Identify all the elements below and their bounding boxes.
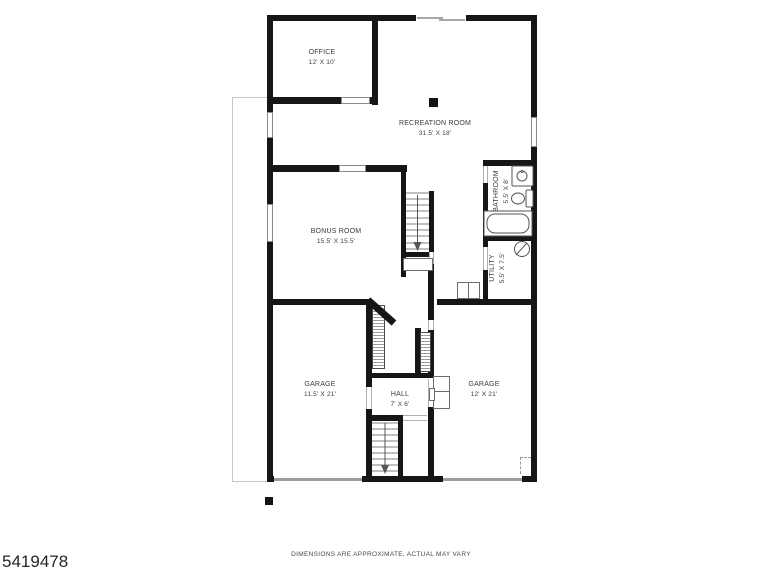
- room-name: BATHROOM: [492, 161, 502, 221]
- room-name: OFFICE: [284, 48, 360, 58]
- room-dims: 5.5' X 8': [502, 161, 512, 221]
- room-label-garage-right: GARAGE 12' X 21': [444, 380, 524, 400]
- room-name: GARAGE: [444, 380, 524, 390]
- fixtures-layer: [0, 0, 768, 576]
- room-label-bathroom: BATHROOM 5.5' X 8': [492, 161, 512, 221]
- room-label-garage-left: GARAGE 11.5' X 21': [280, 380, 360, 400]
- room-label-bonus: BONUS ROOM 15.5' X 15.5': [296, 227, 376, 247]
- room-name: HALL: [375, 390, 425, 400]
- room-name: RECREATION ROOM: [375, 119, 495, 129]
- room-dims: 12' X 10': [284, 58, 360, 68]
- listing-id: 5419478: [2, 552, 68, 572]
- toilet-tank-icon: [526, 190, 533, 207]
- room-dims: 7' X 6': [375, 400, 425, 410]
- room-name: BONUS ROOM: [296, 227, 376, 237]
- room-dims: 11.5' X 21': [280, 390, 360, 400]
- room-name: UTILITY: [488, 238, 498, 298]
- stairs-lower-arrowhead: [381, 465, 389, 474]
- stairs-upper-arrowhead: [414, 242, 422, 251]
- diagonal-wall: [368, 300, 394, 323]
- room-dims: 5.5' X 7.5': [498, 238, 508, 298]
- room-label-recreation: RECREATION ROOM 31.5' X 18': [375, 119, 495, 139]
- room-dims: 15.5' X 15.5': [296, 237, 376, 247]
- toilet-bowl-icon: [512, 193, 525, 204]
- room-label-hall: HALL 7' X 6': [375, 390, 425, 410]
- floorplan-canvas: OFFICE 12' X 10' RECREATION ROOM 31.5' X…: [0, 0, 768, 576]
- room-label-office: OFFICE 12' X 10': [284, 48, 360, 68]
- room-dims: 12' X 21': [444, 390, 524, 400]
- room-label-utility: UTILITY 5.5' X 7.5': [488, 238, 508, 298]
- disclaimer-text: DIMENSIONS ARE APPROXIMATE, ACTUAL MAY V…: [256, 551, 506, 558]
- sink-faucet-icon: [521, 171, 523, 173]
- room-dims: 31.5' X 18': [375, 129, 495, 139]
- room-name: GARAGE: [280, 380, 360, 390]
